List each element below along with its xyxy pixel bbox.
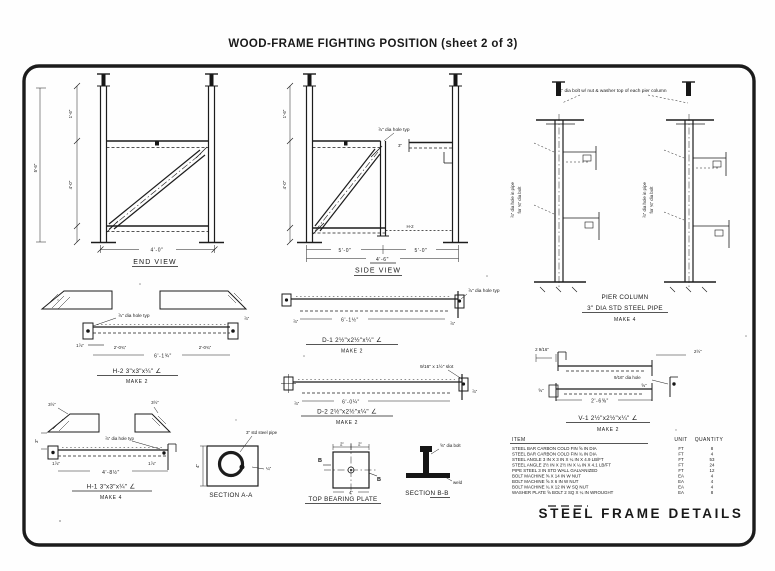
pier-label-1: PIER COLUMN bbox=[601, 294, 648, 301]
plate-dim-half: 2" bbox=[358, 442, 362, 447]
anchor-bolt bbox=[454, 74, 458, 86]
detail-v1-dim-top-right: 2½" bbox=[694, 349, 702, 354]
end-view-label: END VIEW bbox=[133, 259, 176, 266]
detail-d2-dim-end-right: ⅞" bbox=[472, 389, 478, 394]
detail-h1-make: MAKE 4 bbox=[100, 495, 122, 501]
pier-make: MAKE 4 bbox=[614, 317, 636, 323]
end-view-dim-overall: 5'-6" bbox=[33, 163, 38, 172]
section-b-weld-note: weld bbox=[453, 480, 463, 485]
side-view-dim-top: 1'-6" bbox=[282, 109, 287, 118]
section-b-b: ⅝" dia bolt weld SECTION B-B bbox=[405, 443, 462, 498]
detail-d1-dim-total: 6'-1½" bbox=[341, 317, 359, 324]
detail-h2-dim-total: 6'-1¾" bbox=[154, 354, 172, 360]
end-view: 5'-6" 1'-6" 4'-0" bbox=[33, 74, 224, 267]
bom-qty: 4 bbox=[711, 474, 714, 479]
bom-row: BOLT MACHINE ¾ X 12 IN W SQ NUT EA 4 bbox=[512, 485, 714, 490]
detail-d2-dim-end-left: ⅞" bbox=[294, 401, 300, 406]
pier-bolt bbox=[686, 82, 691, 96]
section-a-a: 3" std steel pipe ¼" 4" SECTION A-A bbox=[195, 430, 278, 499]
detail-v1-dim-top-left: 2 9/16" bbox=[535, 347, 549, 352]
section-a-weld: ¼" bbox=[266, 466, 272, 471]
bolt-hole bbox=[86, 329, 90, 333]
bom-qty: 24 bbox=[710, 463, 715, 468]
detail-h1: 3½" 3½" 3" ⅞" dia hole typ 1⅞" 1⅞" 4'-8½… bbox=[34, 400, 176, 501]
bolt-shank bbox=[423, 451, 429, 473]
bolt-hole bbox=[462, 382, 465, 385]
detail-v1-dim-end-right: ⅝" bbox=[641, 383, 647, 388]
section-a-note: 3" std steel pipe bbox=[246, 430, 278, 435]
detail-h2-dim-seg-left: 2'-0¾" bbox=[114, 345, 127, 350]
side-view-stub-dim: 3" bbox=[398, 143, 402, 148]
top-bearing-plate: 2" 2" 4" B B TOP BEARING PLATE bbox=[305, 442, 381, 504]
detail-d2-make: MAKE 2 bbox=[336, 420, 358, 426]
detail-v1-note: 9/16" dia hole bbox=[614, 375, 641, 380]
detail-d2-title: D-2 2½"x2½"x¼" ∠ bbox=[317, 408, 377, 416]
bolt-head bbox=[420, 446, 432, 452]
bom-item: BOLT MACHINE ⅝ X 14 IN W NUT bbox=[512, 474, 581, 479]
detail-h2-title: H-2 3"x3"x¼" ∠ bbox=[113, 368, 162, 375]
detail-d1-dim-end-left: ⅞" bbox=[293, 319, 299, 324]
bom-row: STEEL ANGLE 3 IN X 3 IN X ¼ IN X 4.9 LB/… bbox=[512, 457, 715, 462]
pier-hole-note-2: for ¾" dia bolt bbox=[517, 186, 522, 214]
pier-hole-note-1: ⅞" dia hole in pipe bbox=[642, 181, 647, 218]
detail-v1: 2 9/16" 2½" 9/16" dia hole ⅝" ⅝" 2'-6⅝" … bbox=[535, 347, 702, 433]
bom-header-unit: UNIT bbox=[674, 437, 687, 443]
bom-item: BOLT MACHINE ⅝ X 6 IN W NUT bbox=[512, 479, 579, 484]
bolt-hole bbox=[231, 329, 235, 333]
bom-qty: 8 bbox=[711, 490, 714, 495]
bom-item: WASHER PLATE ⅝ BOLT 2 SQ X ¼ IN WROUGHT bbox=[512, 490, 614, 495]
detail-d1-dim-end-right: ⅞" bbox=[450, 321, 456, 326]
side-view-dim-bottom: 4'-0" bbox=[282, 180, 287, 189]
pipe-ring bbox=[220, 453, 243, 476]
detail-v1-dim-total: 2'-6⅝" bbox=[591, 399, 609, 405]
pier-bolt bbox=[556, 82, 561, 96]
detail-d2: 9/16" x 1½" slot 6'-0¼" ⅞" ⅞" D-2 2½"x2½… bbox=[281, 363, 478, 426]
bom-unit: FT bbox=[678, 468, 684, 473]
detail-h2-make: MAKE 2 bbox=[126, 379, 148, 385]
bom-row: BOLT MACHINE ⅝ X 6 IN W NUT EA 4 bbox=[512, 479, 714, 484]
detail-h1-dim-total: 4'-8½" bbox=[102, 469, 120, 476]
detail-d2-note: 9/16" x 1½" slot bbox=[420, 363, 454, 370]
bolt-hole bbox=[51, 451, 54, 454]
pier-hole-note-1: ⅞" dia hole in pipe bbox=[510, 181, 515, 218]
plate-dim-half: 2" bbox=[340, 442, 344, 447]
top-bearing-plate-label: TOP BEARING PLATE bbox=[308, 496, 377, 503]
section-a-label: SECTION A-A bbox=[209, 492, 253, 499]
bom-row: PIPE STEEL 3 IN STD WALL GALVANIZED FT 1… bbox=[512, 468, 715, 473]
anchor-bolt bbox=[308, 74, 312, 86]
side-view-dim-right: 5'-0" bbox=[415, 248, 428, 254]
detail-v1-make: MAKE 2 bbox=[597, 427, 619, 433]
section-b-note: ⅝" dia bolt bbox=[440, 443, 461, 448]
detail-h1-dim-top-right: 3½" bbox=[151, 400, 159, 405]
pier-hole-note-2: for ¾" dia bolt bbox=[649, 186, 654, 214]
detail-h1-title: H-1 3"x3"x¼" ∠ bbox=[87, 484, 136, 491]
side-view-member-tag: H-2 bbox=[406, 224, 414, 229]
scanned-drawing-sheet: WOOD-FRAME FIGHTING POSITION (sheet 2 of… bbox=[0, 0, 775, 571]
detail-h1-dim-end-left: 1⅞" bbox=[52, 461, 60, 466]
end-view-dim-width: 4'-0" bbox=[151, 248, 164, 254]
plate-dim-full: 4" bbox=[349, 490, 353, 495]
bom-row: STEEL BAR CARBON COLD FIN ¾ IN DIA FT 4 bbox=[512, 452, 714, 457]
bom-item: BOLT MACHINE ¾ X 12 IN W SQ NUT bbox=[512, 485, 589, 490]
bolt-hole bbox=[162, 451, 165, 454]
bill-of-materials: ITEM UNIT QUANTITY STEEL BAR CARBON COLD… bbox=[510, 437, 724, 495]
pier-note-top: ¾" dia bolt w/ nut & washer top of each … bbox=[557, 88, 666, 94]
bom-qty: 53 bbox=[710, 457, 715, 462]
detail-d1-title: D-1 2½"x2½"x¼" ∠ bbox=[322, 336, 382, 344]
end-view-dim-bottom: 4'-0" bbox=[68, 180, 73, 189]
anchor-bolt bbox=[102, 74, 106, 86]
detail-d1: ⅞" dia hole typ 6'-1½" ⅞" ⅞" D-1 2½"x2½"… bbox=[282, 288, 500, 355]
side-view-dim-center: 4'-6" bbox=[376, 257, 389, 263]
bom-unit: EA bbox=[678, 474, 684, 479]
bom-qty: 8 bbox=[711, 446, 714, 451]
bom-item: STEEL BAR CARBON COLD FIN ¾ IN DIA bbox=[512, 452, 597, 457]
bom-header-item: ITEM bbox=[512, 437, 526, 443]
bom-item: PIPE STEEL 3 IN STD WALL GALVANIZED bbox=[512, 468, 597, 473]
bom-qty: 4 bbox=[711, 452, 714, 457]
side-view-label: SIDE VIEW bbox=[355, 268, 401, 275]
side-view-dim-left: 5'-0" bbox=[339, 248, 352, 254]
section-a-dim: 4" bbox=[195, 464, 200, 468]
bom-item: STEEL ANGLE 3 IN X 3 IN X ¼ IN X 4.9 LB/… bbox=[512, 457, 604, 462]
detail-d1-make: MAKE 2 bbox=[341, 349, 363, 355]
bom-unit: FT bbox=[678, 463, 684, 468]
bom-unit: FT bbox=[678, 452, 684, 457]
bom-unit: EA bbox=[678, 485, 684, 490]
bom-qty: 4 bbox=[711, 479, 714, 484]
bolt-hole bbox=[458, 299, 461, 302]
weld-blob bbox=[240, 465, 245, 470]
detail-h2-note: ⅞" dia hole typ bbox=[118, 313, 150, 319]
bom-item: STEEL BAR CARBON COLD FIN ⅝ IN DIA bbox=[512, 446, 597, 451]
bom-qty: 4 bbox=[711, 485, 714, 490]
bom-row: STEEL BAR CARBON COLD FIN ⅝ IN DIA FT 8 bbox=[512, 446, 714, 451]
anchor-bolt bbox=[210, 74, 214, 86]
bom-row: BOLT MACHINE ⅝ X 14 IN W NUT EA 4 bbox=[512, 474, 714, 479]
cut-mark-b: B bbox=[318, 458, 322, 464]
bom-unit: EA bbox=[678, 490, 684, 495]
bolt-hole bbox=[672, 382, 675, 385]
detail-h1-dim-end-right: 1⅞" bbox=[148, 461, 156, 466]
bom-qty: 12 bbox=[710, 468, 715, 473]
bom-item: STEEL ANGLE 2½ IN X 2½ IN X ¼ IN X 4.1 L… bbox=[512, 463, 611, 468]
side-view-note: ⅞" dia hole typ bbox=[378, 127, 410, 133]
bolt-hole bbox=[285, 298, 288, 301]
bom-row: STEEL ANGLE 2½ IN X 2½ IN X ¼ IN X 4.1 L… bbox=[512, 463, 715, 468]
detail-d1-note: ⅞" dia hole typ bbox=[468, 288, 500, 294]
detail-h1-dim-side: 3" bbox=[34, 439, 39, 443]
page-title: WOOD-FRAME FIGHTING POSITION (sheet 2 of… bbox=[228, 38, 517, 50]
plate-section bbox=[406, 473, 450, 478]
detail-h2-dim-side: ⅞" bbox=[244, 316, 250, 321]
end-view-dim-top: 1'-6" bbox=[68, 109, 73, 118]
bom-unit: FT bbox=[678, 446, 684, 451]
detail-d2-dim-total: 6'-0¼" bbox=[342, 400, 360, 406]
drawing-canvas: WOOD-FRAME FIGHTING POSITION (sheet 2 of… bbox=[0, 0, 775, 571]
drawing-title: STEEL FRAME DETAILS bbox=[539, 506, 744, 521]
side-view: 1'-6" 4'-0" 3" ⅞" dia hole typ bbox=[282, 74, 468, 276]
cut-mark-b: B bbox=[377, 477, 381, 483]
section-b-label: SECTION B-B bbox=[405, 490, 449, 497]
bom-unit: EA bbox=[678, 479, 684, 484]
bom-unit: FT bbox=[678, 457, 684, 462]
detail-h2: ⅞" dia hole typ ⅞" 1⅞" 2'-0¾" 2'-0¾" 6'-… bbox=[42, 291, 250, 385]
detail-v1-title: V-1 2½"x2½"x¼" ∠ bbox=[578, 414, 637, 422]
bom-row: WASHER PLATE ⅝ BOLT 2 SQ X ¼ IN WROUGHT … bbox=[512, 490, 714, 495]
pier-column-detail: ¾" dia bolt w/ nut & washer top of each … bbox=[510, 82, 729, 323]
detail-h1-dim-top-left: 3½" bbox=[48, 402, 56, 407]
detail-h2-dim-seg-right: 2'-0¾" bbox=[199, 345, 212, 350]
detail-h1-note: ⅞" dia hole typ bbox=[105, 436, 134, 441]
detail-v1-dim-end-left: ⅝" bbox=[538, 388, 544, 393]
detail-h2-dim-end-left: 1⅞" bbox=[76, 343, 84, 348]
pier-label-2: 3" DIA STD STEEL PIPE bbox=[587, 305, 663, 312]
bom-header-quantity: QUANTITY bbox=[695, 437, 724, 443]
